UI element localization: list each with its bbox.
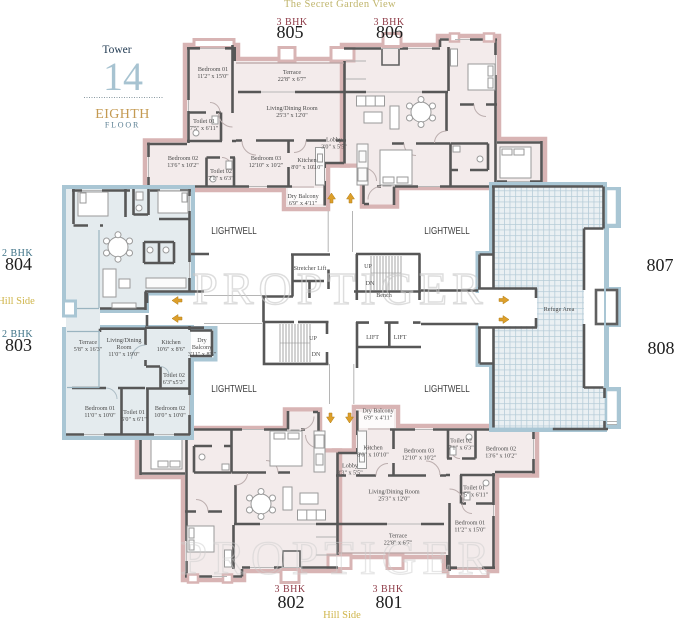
- svg-text:805: 805: [277, 22, 304, 42]
- svg-text:11'0" x 19'0": 11'0" x 19'0": [108, 352, 140, 358]
- svg-text:PROPTIGER: PROPTIGER: [192, 263, 487, 314]
- svg-text:801: 801: [376, 592, 403, 612]
- svg-text:Toilet 02: Toilet 02: [450, 439, 472, 445]
- svg-text:PROPTIGER: PROPTIGER: [180, 532, 495, 585]
- svg-text:LIGHTWELL: LIGHTWELL: [211, 226, 257, 237]
- svg-text:7'5" x 6'11": 7'5" x 6'11": [190, 126, 219, 132]
- svg-text:6'3"x5'3": 6'3"x5'3": [163, 380, 186, 386]
- svg-text:6'9" x 4'11": 6'9" x 4'11": [289, 201, 318, 207]
- svg-text:UP: UP: [309, 336, 317, 342]
- svg-text:25'3" x 12'0": 25'3" x 12'0": [276, 113, 308, 119]
- svg-text:806: 806: [376, 22, 403, 42]
- svg-text:803: 803: [5, 335, 32, 355]
- svg-text:804: 804: [5, 254, 32, 274]
- svg-text:Dry Balcony: Dry Balcony: [362, 409, 394, 415]
- svg-text:Dry Balcony: Dry Balcony: [287, 194, 319, 200]
- svg-text:14: 14: [103, 54, 143, 99]
- svg-text:UP: UP: [364, 264, 372, 270]
- svg-text:FLOOR: FLOOR: [105, 121, 140, 130]
- svg-text:Kitchen: Kitchen: [161, 340, 180, 346]
- svg-text:Lobby: Lobby: [326, 138, 343, 144]
- svg-text:Bedroom 01: Bedroom 01: [455, 521, 485, 527]
- svg-text:Toilet 01: Toilet 01: [123, 410, 145, 416]
- svg-text:DN: DN: [312, 352, 321, 358]
- svg-text:Refuge Area: Refuge Area: [544, 306, 575, 313]
- svg-text:5'0" x 6'1": 5'0" x 6'1": [121, 417, 147, 423]
- svg-text:Living/Dining: Living/Dining: [107, 338, 142, 344]
- svg-text:3'0" x 5'5": 3'0" x 5'5": [321, 145, 347, 151]
- svg-text:22'8" x 6'7": 22'8" x 6'7": [278, 77, 307, 83]
- svg-text:10'6" x 8'6": 10'6" x 8'6": [157, 347, 186, 353]
- svg-text:11'2" x 15'0": 11'2" x 15'0": [197, 74, 229, 80]
- svg-text:The Secret Garden View: The Secret Garden View: [284, 0, 396, 10]
- svg-text:Terrace: Terrace: [389, 534, 407, 540]
- svg-text:807: 807: [647, 255, 674, 275]
- svg-text:Dry: Dry: [197, 338, 207, 344]
- svg-text:Stretcher Lift: Stretcher Lift: [294, 265, 327, 272]
- svg-text:Living/Dining Room: Living/Dining Room: [266, 106, 318, 112]
- svg-text:LIGHTWELL: LIGHTWELL: [424, 384, 470, 395]
- svg-text:LIGHTWELL: LIGHTWELL: [424, 226, 470, 237]
- svg-text:10'0" x 10'0": 10'0" x 10'0": [154, 413, 186, 419]
- svg-text:Bedroom 01: Bedroom 01: [85, 406, 115, 412]
- svg-text:7'1" x 6'3": 7'1" x 6'3": [208, 176, 234, 182]
- svg-text:6'9" x 4'11": 6'9" x 4'11": [364, 416, 393, 422]
- svg-text:Hill Side: Hill Side: [323, 610, 361, 620]
- svg-text:11'2" x 15'0": 11'2" x 15'0": [454, 528, 486, 534]
- svg-text:Bedroom 01: Bedroom 01: [198, 67, 228, 73]
- svg-text:Balcony: Balcony: [192, 345, 213, 351]
- svg-text:13'6" x 10'2": 13'6" x 10'2": [485, 454, 517, 460]
- svg-text:22'8" x 6'7": 22'8" x 6'7": [384, 541, 413, 547]
- svg-text:8'0" x 10'10": 8'0" x 10'10": [357, 453, 389, 459]
- svg-text:7'1" x 6'3": 7'1" x 6'3": [448, 446, 474, 452]
- svg-text:Bedroom 03: Bedroom 03: [404, 449, 434, 455]
- svg-text:LIGHTWELL: LIGHTWELL: [211, 384, 257, 395]
- svg-text:8'0" x 10'10": 8'0" x 10'10": [291, 165, 323, 171]
- svg-text:Bench: Bench: [376, 293, 392, 299]
- svg-text:Bedroom 03: Bedroom 03: [251, 156, 281, 162]
- svg-text:7'5" x 6'11": 7'5" x 6'11": [460, 493, 489, 499]
- svg-text:3'3" x 5'5": 3'3" x 5'5": [337, 471, 363, 477]
- svg-text:LIFT: LIFT: [394, 335, 407, 341]
- svg-text:Living/Dining Room: Living/Dining Room: [368, 490, 420, 496]
- svg-text:11'0" x 10'0": 11'0" x 10'0": [84, 413, 116, 419]
- svg-text:5'8" x 16'3": 5'8" x 16'3": [74, 347, 103, 353]
- svg-text:3'11" x 8'6": 3'11" x 8'6": [188, 352, 217, 358]
- svg-text:Toilet 02: Toilet 02: [163, 373, 185, 379]
- svg-text:808: 808: [648, 338, 675, 358]
- svg-text:Toilet 01: Toilet 01: [463, 486, 485, 492]
- svg-text:802: 802: [278, 592, 305, 612]
- svg-text:Toilet 02: Toilet 02: [210, 169, 232, 175]
- svg-text:Bedroom 02: Bedroom 02: [486, 447, 516, 453]
- svg-text:Hill Side: Hill Side: [0, 296, 35, 307]
- svg-text:Terrace: Terrace: [283, 70, 301, 76]
- svg-text:Bedroom 02: Bedroom 02: [155, 406, 185, 412]
- svg-text:25'3" x 12'0": 25'3" x 12'0": [378, 497, 410, 503]
- svg-text:Kitchen: Kitchen: [363, 446, 382, 452]
- svg-text:Kitchen: Kitchen: [297, 158, 316, 164]
- svg-text:Toilet 01: Toilet 01: [193, 119, 215, 125]
- svg-text:Room: Room: [117, 345, 132, 351]
- svg-text:DN: DN: [366, 281, 375, 287]
- svg-text:Bedroom 02: Bedroom 02: [168, 156, 198, 162]
- svg-text:Lobby: Lobby: [342, 464, 359, 470]
- svg-text:13'6" x 10'2": 13'6" x 10'2": [167, 163, 199, 169]
- svg-text:12'10" x 10'2": 12'10" x 10'2": [249, 163, 284, 169]
- svg-text:Terrace: Terrace: [79, 340, 97, 346]
- svg-text:12'10" x 10'2": 12'10" x 10'2": [402, 456, 437, 462]
- svg-text:LIFT: LIFT: [366, 335, 379, 341]
